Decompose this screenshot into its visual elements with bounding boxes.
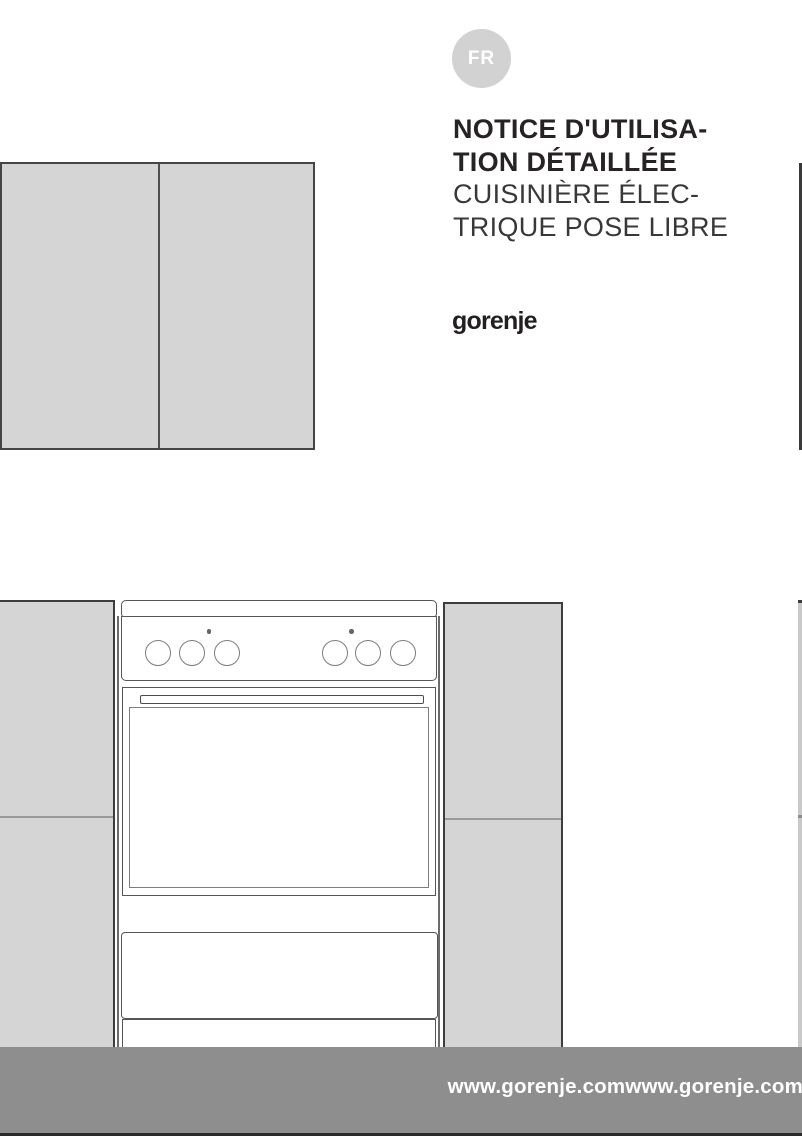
cooker-plinth-panel bbox=[122, 1019, 436, 1047]
manual-cover-page: FR NOTICE D'UTILISA- TION DÉTAILLÉE CUIS… bbox=[0, 0, 802, 1136]
control-knob-2 bbox=[179, 640, 205, 666]
kitchen-cabinet-clipped-page-edge bbox=[798, 600, 802, 1047]
control-knob-6 bbox=[390, 640, 416, 666]
control-knob-5 bbox=[355, 640, 381, 666]
page-title: NOTICE D'UTILISA- TION DÉTAILLÉE CUISINI… bbox=[453, 113, 728, 243]
cabinet-doors-illustration bbox=[0, 162, 315, 450]
oven-door-glass bbox=[129, 707, 429, 888]
title-line-bold-1: NOTICE D'UTILISA- bbox=[453, 113, 728, 146]
oven-door bbox=[122, 687, 436, 896]
right-cabinet-divider-line bbox=[445, 818, 561, 820]
clipped-cabinet-top-edge bbox=[798, 600, 802, 603]
kitchen-cabinet-left bbox=[0, 600, 115, 1047]
oven-door-handle bbox=[140, 695, 424, 704]
indicator-light-right bbox=[349, 629, 354, 634]
indicator-light-left bbox=[207, 629, 212, 634]
control-knob-4 bbox=[322, 640, 348, 666]
footer-url-text: www.gorenje.comwww.gorenje.com bbox=[448, 1075, 802, 1099]
kitchen-cabinet-right bbox=[443, 602, 563, 1047]
clipped-cabinet-divider-mark bbox=[798, 815, 802, 818]
cooker-right-side-wall bbox=[438, 616, 440, 1047]
title-line-regular-1: CUISINIÈRE ÉLEC- bbox=[453, 178, 728, 211]
cooktop-edge-strip bbox=[121, 600, 437, 617]
freestanding-cooker-illustration bbox=[116, 600, 441, 1047]
title-line-bold-2: TION DÉTAILLÉE bbox=[453, 146, 728, 179]
cabinet-door-divider-line bbox=[158, 164, 160, 448]
left-cabinet-divider-line bbox=[0, 816, 113, 818]
title-line-regular-2: TRIQUE POSE LIBRE bbox=[453, 211, 728, 244]
gorenje-logo: gorenje bbox=[452, 309, 537, 334]
language-badge: FR bbox=[452, 29, 511, 88]
storage-drawer bbox=[121, 932, 438, 1019]
footer-bar: www.gorenje.comwww.gorenje.com bbox=[0, 1047, 802, 1136]
control-knob-3 bbox=[214, 640, 240, 666]
control-knob-1 bbox=[145, 640, 171, 666]
cooker-left-side-wall bbox=[117, 616, 119, 1047]
language-badge-label: FR bbox=[468, 48, 495, 70]
